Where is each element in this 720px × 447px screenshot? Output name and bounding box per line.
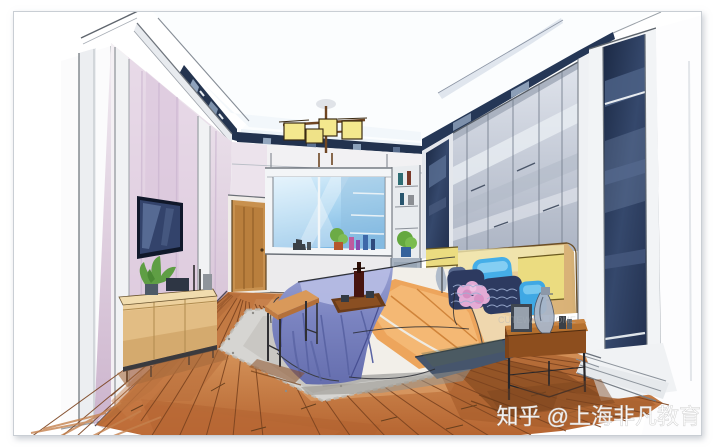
svg-text:知乎 @上海非凡教育: 知乎 @上海非凡教育 [497, 404, 701, 429]
svg-text:CUTEWALL HOME: CUTEWALL HOME [498, 315, 576, 325]
